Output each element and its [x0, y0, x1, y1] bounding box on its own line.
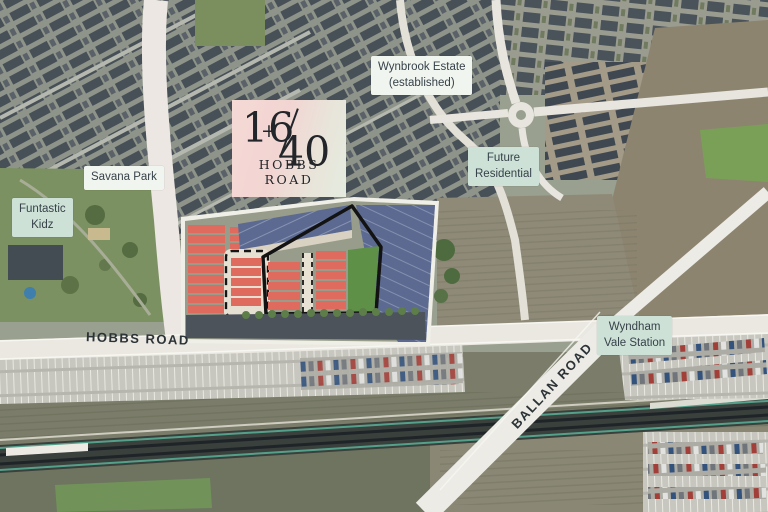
wynbrook-estate-label: Wynbrook Estate (established): [371, 56, 472, 95]
wyndham-vale-station-label: Wyndham Vale Station: [597, 316, 672, 355]
aerial-site-map: 16 + 40 HOBBS ROAD Wynbrook Estate (esta…: [0, 0, 768, 512]
logo-plus-sign: +: [261, 120, 277, 142]
logo-subtitle: HOBBS ROAD: [232, 157, 346, 187]
future-residential-label: Future Residential: [468, 147, 539, 186]
funtastic-kidz-label: Funtastic Kidz: [12, 198, 73, 237]
funtastic-kidz-building: [8, 245, 63, 280]
pool: [24, 287, 36, 299]
savana-park-label: Savana Park: [84, 166, 164, 190]
green-reserve: [195, 0, 265, 46]
site-plan-overlay: [181, 197, 439, 346]
savana-park-area: [0, 168, 165, 322]
site-logo-card: 16 + 40 HOBBS ROAD: [232, 100, 346, 197]
